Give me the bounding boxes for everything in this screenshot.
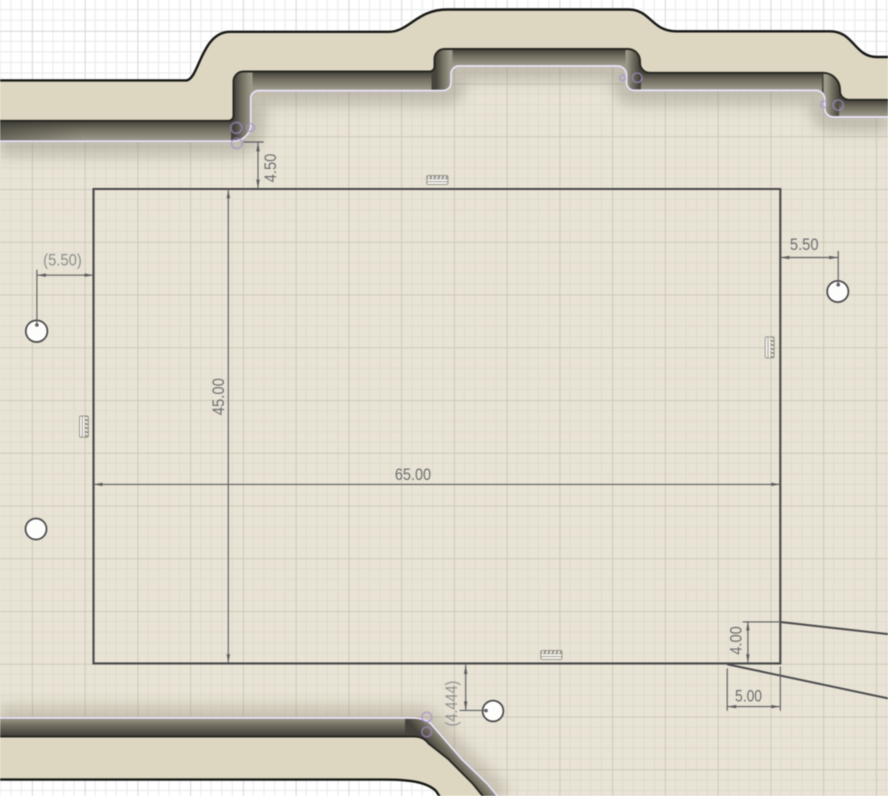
svg-text:5.00: 5.00	[735, 686, 762, 705]
svg-text:4.50: 4.50	[261, 154, 280, 183]
svg-text:65.00: 65.00	[395, 465, 431, 484]
svg-text:(4.444): (4.444)	[442, 681, 461, 727]
svg-text:(5.50): (5.50)	[43, 251, 82, 270]
svg-text:5.50: 5.50	[790, 235, 819, 254]
svg-text:45.00: 45.00	[209, 378, 228, 415]
svg-text:4.00: 4.00	[727, 626, 746, 655]
